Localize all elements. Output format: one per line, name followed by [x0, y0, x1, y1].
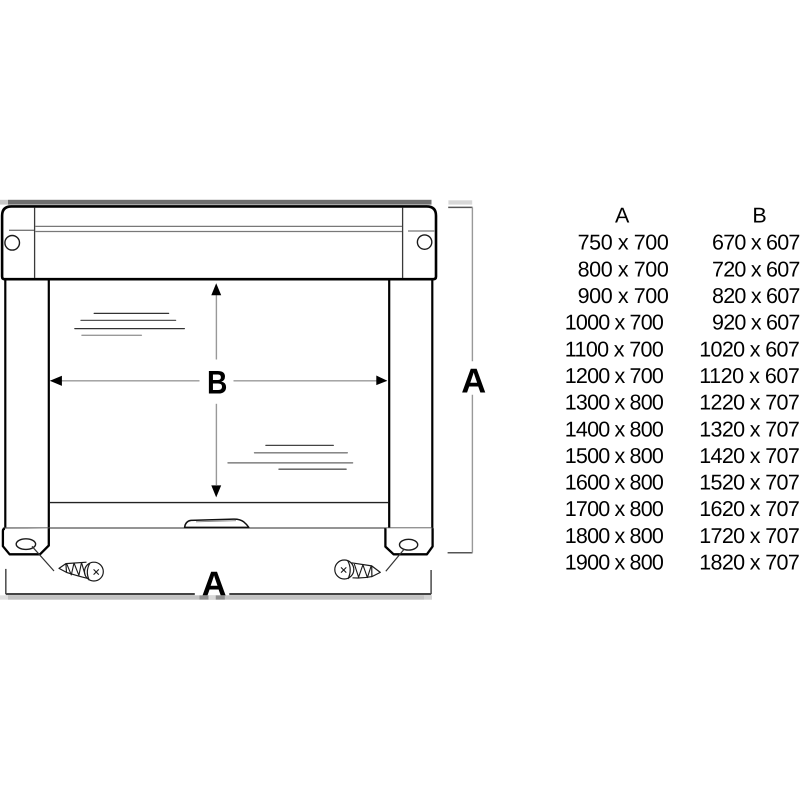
svg-text:1800 x 800: 1800 x 800 [565, 524, 664, 548]
svg-text:1300 x 800: 1300 x 800 [565, 391, 664, 415]
svg-text:1220 x 707: 1220 x 707 [699, 391, 800, 415]
svg-text:1720 x 707: 1720 x 707 [699, 524, 800, 548]
svg-text:1820 x 707: 1820 x 707 [699, 551, 800, 575]
svg-text:1500 x 800: 1500 x 800 [565, 444, 664, 468]
svg-text:820 x 607: 820 x 607 [712, 284, 800, 308]
svg-text:1100 x 700: 1100 x 700 [565, 337, 664, 361]
svg-text:B: B [752, 204, 766, 228]
svg-text:920 x 607: 920 x 607 [712, 311, 800, 335]
svg-text:1900 x 800: 1900 x 800 [565, 551, 664, 575]
svg-text:720 x 607: 720 x 607 [712, 257, 800, 281]
svg-text:1700 x 800: 1700 x 800 [565, 497, 664, 521]
svg-text:1120 x 607: 1120 x 607 [699, 364, 800, 388]
svg-text:900 x 700: 900 x 700 [578, 284, 669, 308]
svg-text:A: A [615, 204, 630, 228]
svg-text:1400 x 800: 1400 x 800 [565, 417, 664, 441]
svg-text:1420 x 707: 1420 x 707 [699, 444, 800, 468]
svg-text:750 x 700: 750 x 700 [578, 231, 669, 255]
svg-text:1320 x 707: 1320 x 707 [699, 417, 800, 441]
svg-text:B: B [207, 364, 227, 401]
svg-text:A: A [461, 363, 486, 401]
svg-text:1020 x 607: 1020 x 607 [699, 337, 800, 361]
svg-text:1600 x 800: 1600 x 800 [565, 471, 664, 495]
svg-text:1620 x 707: 1620 x 707 [699, 497, 800, 521]
svg-text:1000 x 700: 1000 x 700 [565, 311, 664, 335]
svg-text:1520 x 707: 1520 x 707 [699, 471, 800, 495]
svg-text:1200 x 700: 1200 x 700 [565, 364, 664, 388]
svg-text:670 x 607: 670 x 607 [712, 231, 800, 255]
svg-text:800 x 700: 800 x 700 [578, 257, 669, 281]
